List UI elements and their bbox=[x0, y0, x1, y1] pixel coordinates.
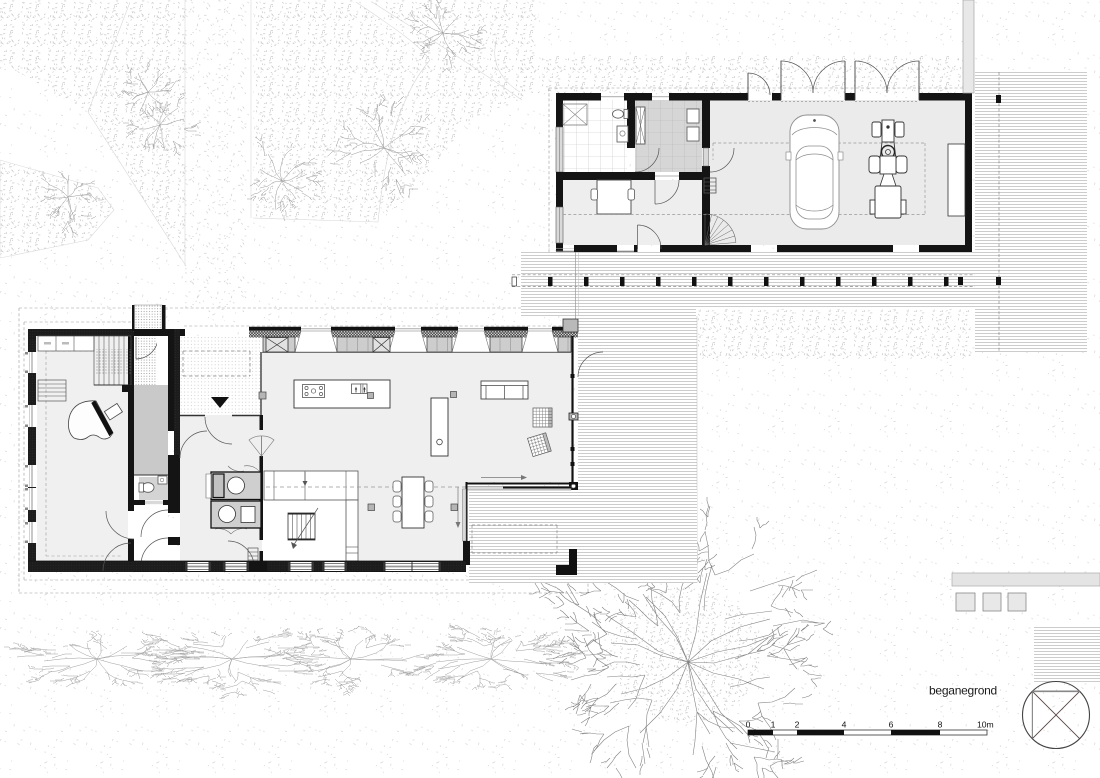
svg-text:beganegrond: beganegrond bbox=[929, 684, 997, 698]
svg-text:6: 6 bbox=[889, 720, 894, 730]
svg-text:1: 1 bbox=[771, 720, 776, 730]
svg-text:8: 8 bbox=[938, 720, 943, 730]
svg-text:10m: 10m bbox=[977, 720, 994, 730]
svg-text:4: 4 bbox=[842, 720, 847, 730]
svg-text:0: 0 bbox=[746, 720, 751, 730]
svg-text:2: 2 bbox=[795, 720, 800, 730]
